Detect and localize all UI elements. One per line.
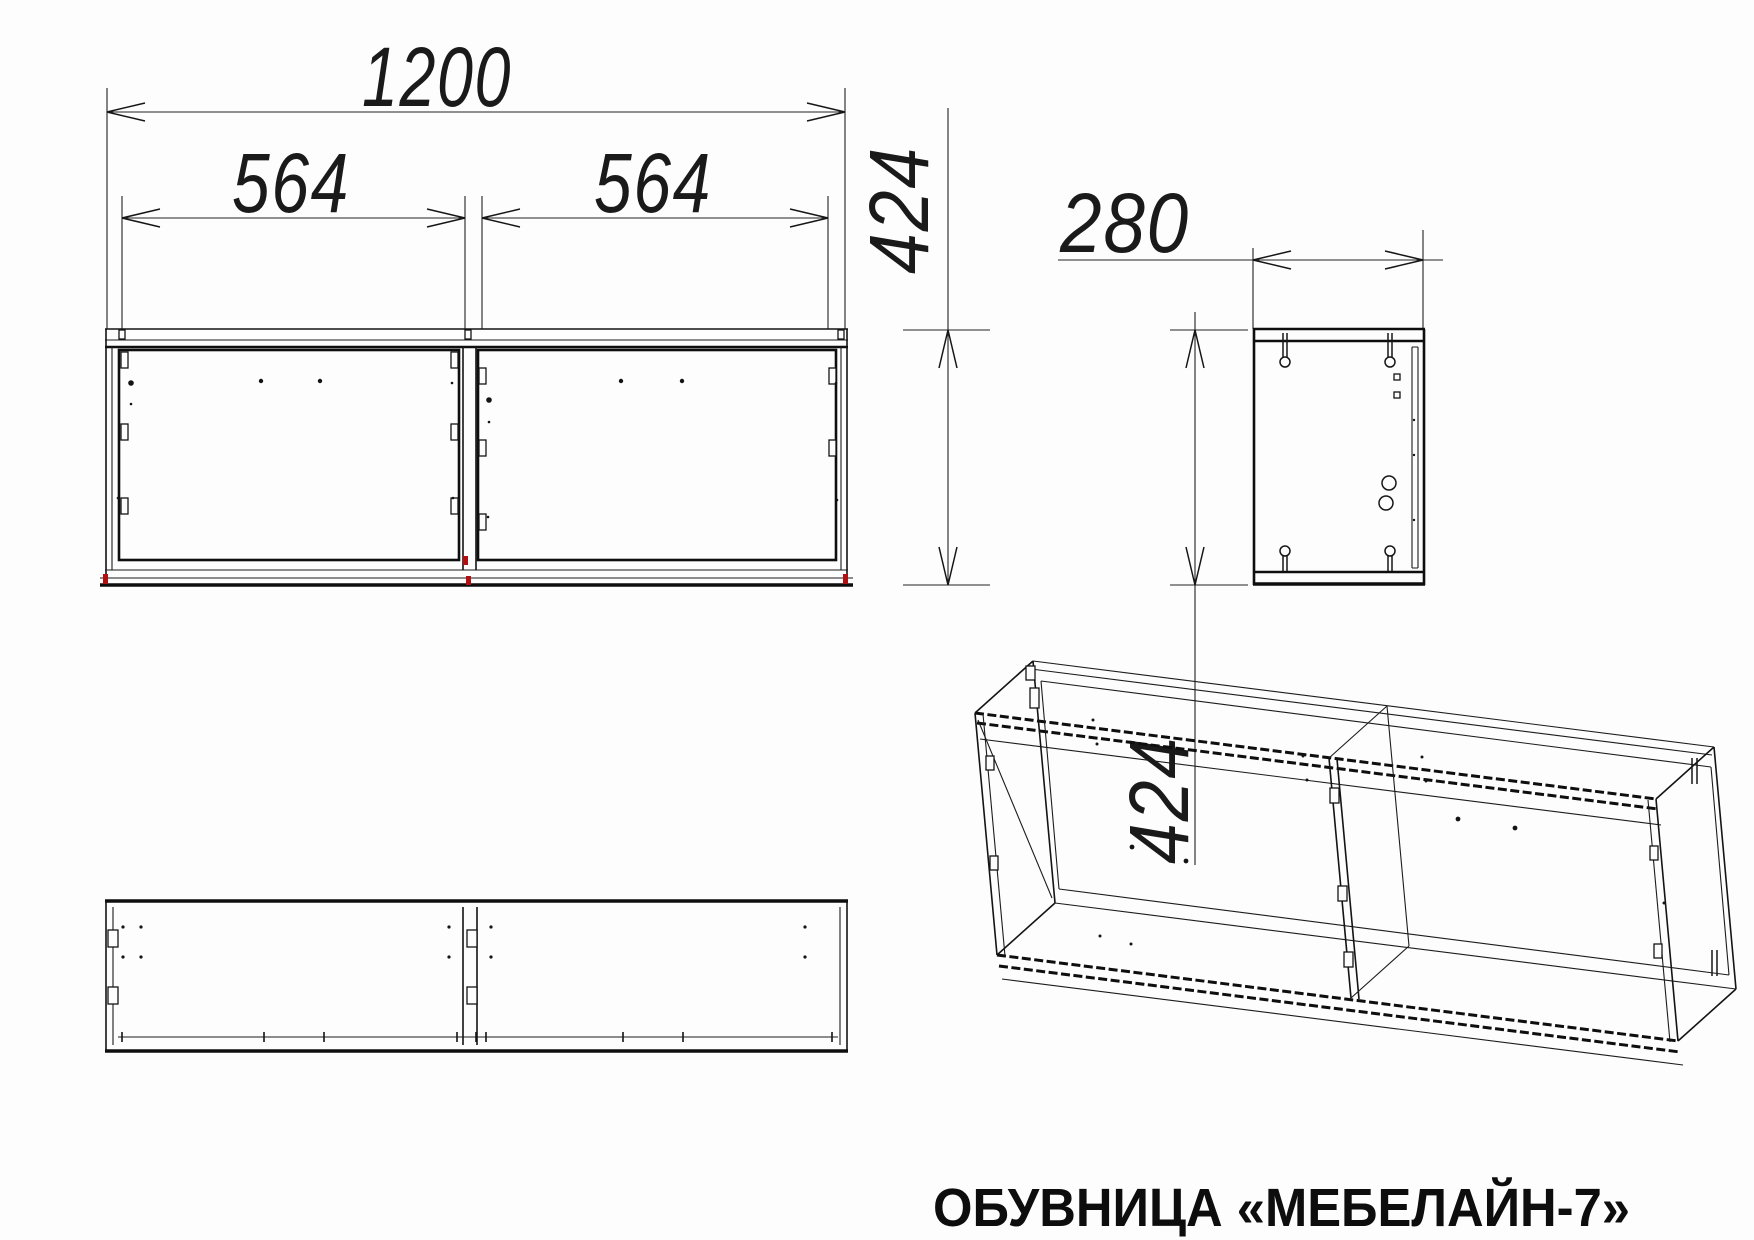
front-view-top-rail xyxy=(105,329,848,347)
dimension-label-564-right: 564 xyxy=(594,136,712,230)
isometric-view xyxy=(975,661,1736,1065)
front-view-hinge-fittings xyxy=(119,330,844,530)
plan-view-fittings xyxy=(108,925,807,1004)
dimension-label-280: 280 xyxy=(1059,176,1190,270)
side-view-cam-locks xyxy=(1379,374,1415,521)
dimension-label-564-left: 564 xyxy=(232,136,350,230)
dimension-front-height: 424 xyxy=(852,108,990,585)
isometric-fittings xyxy=(986,719,1666,959)
front-view xyxy=(100,329,853,585)
isometric-right-panel xyxy=(1648,747,1736,1042)
dimension-right-door: 564 xyxy=(482,136,828,329)
front-view-right-door xyxy=(478,350,836,560)
dimension-left-door: 564 xyxy=(122,136,465,329)
side-view-carcass xyxy=(1253,329,1425,585)
side-view-screws xyxy=(1280,333,1395,571)
isometric-center-divider xyxy=(1329,706,1409,999)
drawing-title: ОБУВНИЦА «МЕБЕЛАЙН-7» xyxy=(933,1177,1630,1238)
dimension-label-424-side: 424 xyxy=(1112,736,1206,864)
dimension-label-424-front: 424 xyxy=(852,146,946,274)
plan-view-carcass xyxy=(105,901,848,1051)
dimension-depth: 280 xyxy=(1058,176,1443,329)
front-view-left-door xyxy=(119,350,459,560)
dimension-total-width: 1200 xyxy=(107,30,845,329)
drawing-canvas: 1200 564 564 424 xyxy=(0,0,1754,1240)
dimension-label-1200: 1200 xyxy=(362,30,512,124)
front-view-carcass xyxy=(100,329,853,585)
dimension-side-height: 424 xyxy=(1112,312,1248,865)
plan-view xyxy=(105,901,848,1051)
technical-drawing-sheet: 1200 564 564 424 xyxy=(0,0,1754,1240)
side-view xyxy=(1253,329,1425,585)
